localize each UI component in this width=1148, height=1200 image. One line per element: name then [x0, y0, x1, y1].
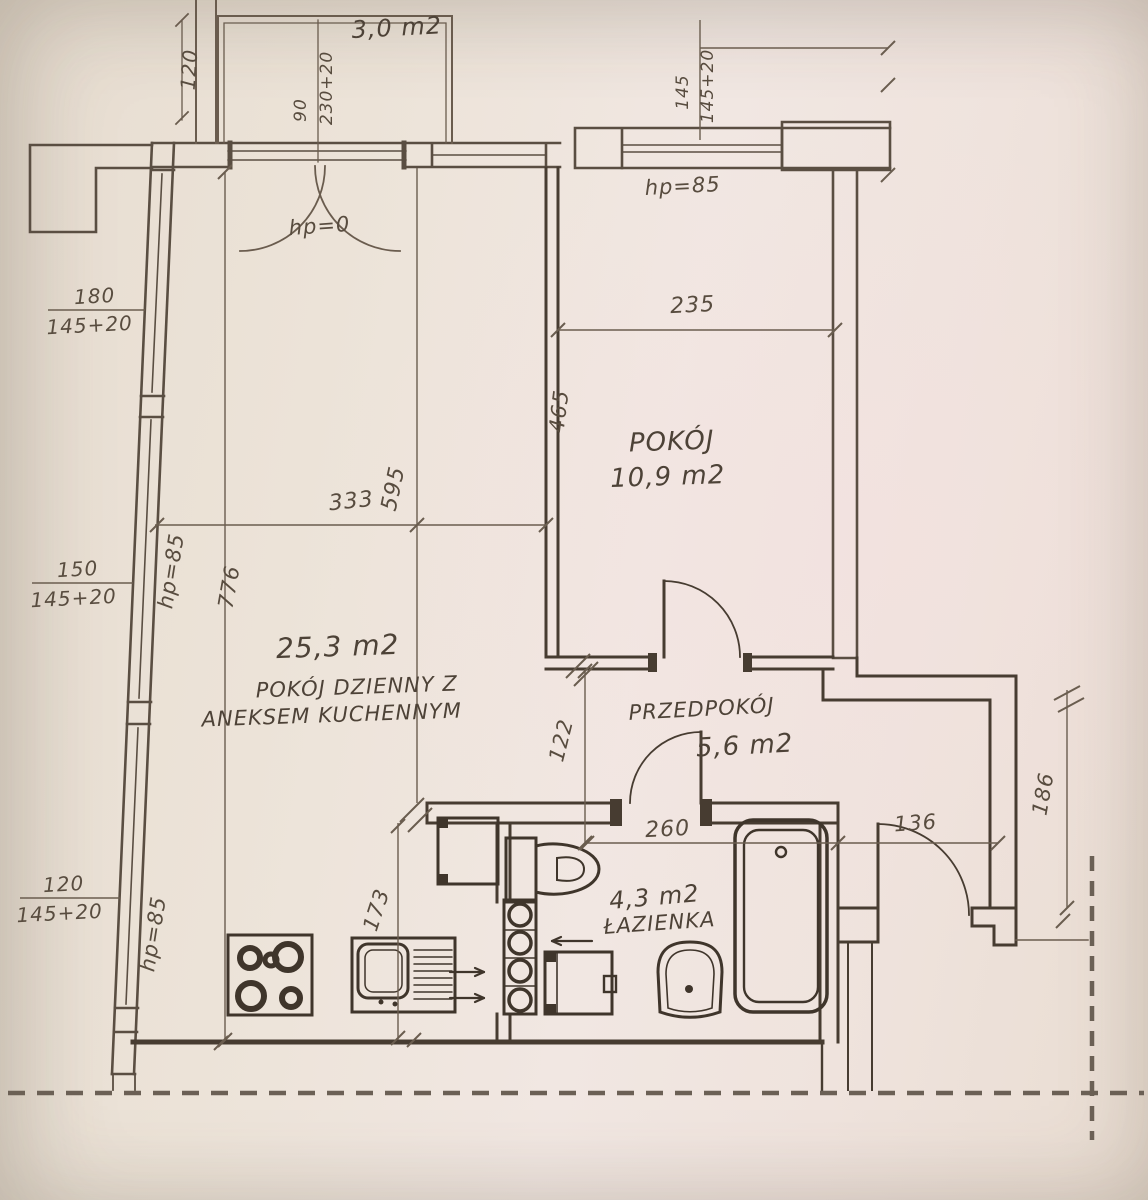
pokoj-area: 10,9 m2 — [610, 460, 726, 494]
toilet — [506, 838, 599, 902]
dim-333: 333 — [328, 487, 375, 517]
window-right-height-dim: 145+20 — [698, 49, 718, 123]
hall-area: 5,6 m2 — [695, 728, 794, 763]
dim-122: 122 — [544, 716, 578, 764]
window3-height-dim: 145+20 — [16, 899, 104, 927]
dim-186: 186 — [1028, 770, 1059, 817]
bathtub — [735, 820, 827, 1012]
living-area: 25,3 m2 — [275, 628, 399, 665]
plot-boundary-dashed — [8, 856, 1144, 1140]
sill-mid-label: hp=85 — [153, 532, 189, 611]
window2-width-dim: 150 — [56, 556, 98, 582]
kitchen-sink — [352, 938, 455, 1012]
dim-595: 595 — [377, 464, 411, 513]
window3-width-dim: 120 — [42, 871, 84, 897]
window2-height-dim: 145+20 — [30, 584, 118, 612]
fixtures — [228, 818, 827, 1017]
dim-173: 173 — [358, 886, 394, 934]
floorplan-drawing: 3,0 m2 120 90 230+20 hp=0 145 145+20 hp=… — [0, 0, 1148, 1200]
bathroom-sink — [658, 942, 722, 1017]
stove — [228, 935, 312, 1015]
living-name-line1: POKÓJ DZIENNY Z — [255, 670, 458, 702]
balcony-area-label: 3,0 m2 — [351, 11, 443, 44]
washing-machine — [545, 952, 616, 1014]
shaft — [504, 900, 536, 1014]
balcony-door-height-dim: 230+20 — [317, 51, 337, 125]
dim-235: 235 — [670, 292, 716, 319]
hall-name: PRZEDPOKÓJ — [628, 692, 775, 725]
balcony-depth-dim: 120 — [176, 48, 203, 91]
dim-776: 776 — [214, 563, 245, 610]
sill-right-label: hp=85 — [644, 172, 721, 200]
window1-width-dim: 180 — [73, 283, 115, 309]
balcony-door-width-dim: 90 — [291, 98, 311, 122]
cabinet — [438, 818, 498, 884]
window1-height-dim: 145+20 — [46, 311, 134, 339]
balcony-door-sill-label: hp=0 — [288, 212, 351, 240]
dim-260: 260 — [645, 816, 691, 843]
vent-arrows — [450, 937, 592, 1002]
dim-465: 465 — [545, 388, 574, 434]
floorplan-photo: 3,0 m2 120 90 230+20 hp=0 145 145+20 hp=… — [0, 0, 1148, 1200]
living-name-line2: ANEKSEM KUCHENNYM — [199, 698, 462, 731]
dim-136: 136 — [893, 810, 938, 837]
pokoj-name: POKÓJ — [628, 424, 715, 459]
window-right-width-dim: 145 — [673, 74, 693, 109]
